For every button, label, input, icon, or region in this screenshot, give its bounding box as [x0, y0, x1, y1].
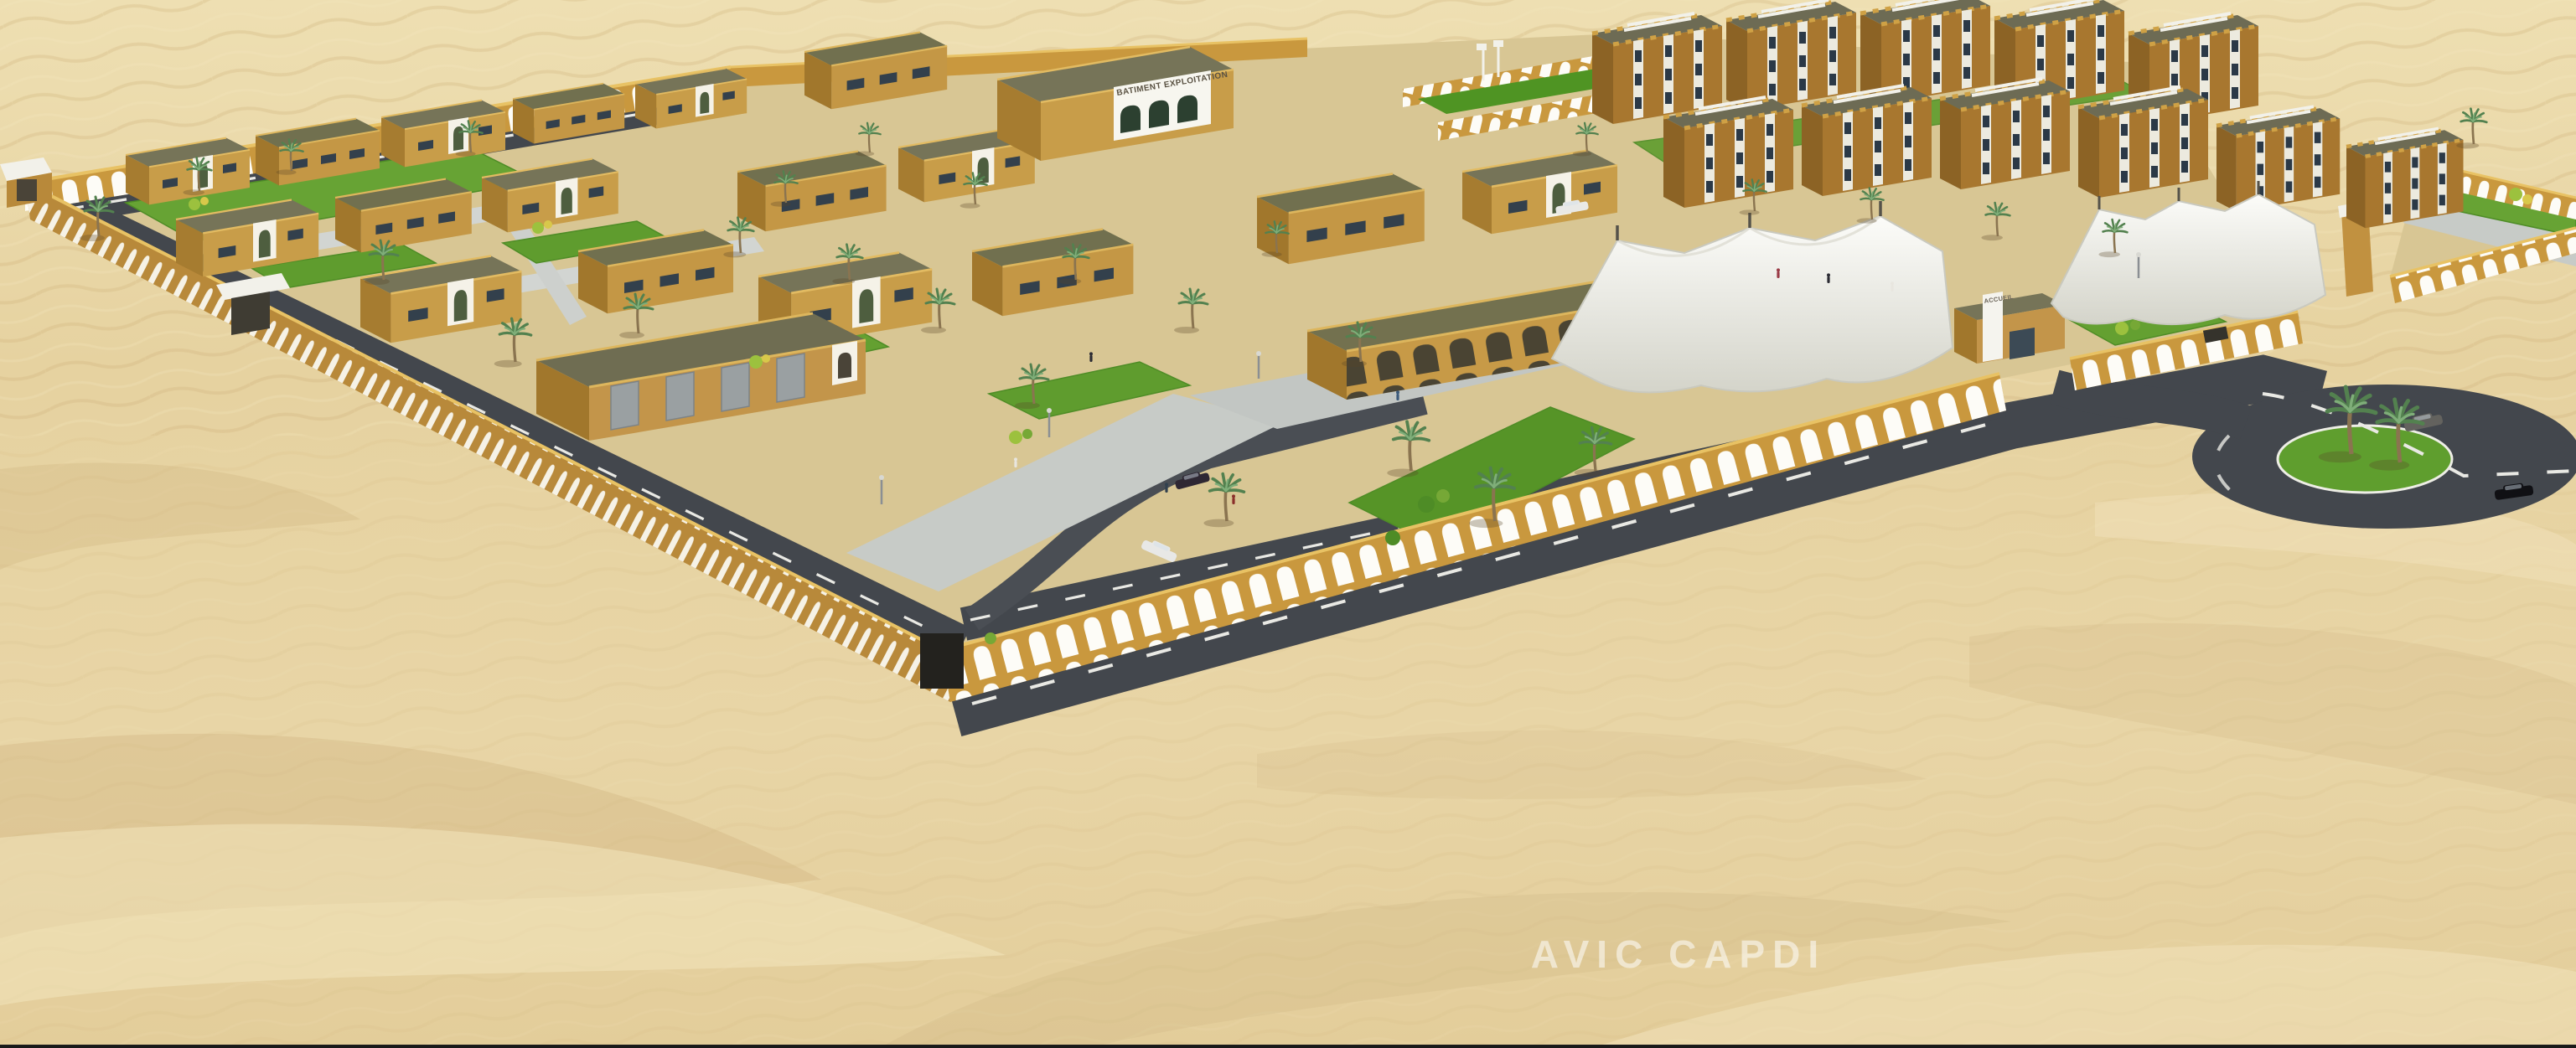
person: [1232, 494, 1235, 504]
person: [1827, 273, 1830, 283]
architectural-rendering: BATIMENT EXPLOITATION ACCUEIL: [0, 0, 2576, 1048]
south-corner-gate: [920, 633, 964, 689]
west-corner-gatehouse: [0, 157, 52, 208]
watermark-avic-capdi: AVIC CAPDI: [1531, 932, 1826, 976]
person: [1891, 281, 1894, 292]
person: [1777, 268, 1780, 278]
person: [1089, 352, 1093, 362]
person: [1396, 390, 1399, 400]
person: [1165, 483, 1168, 493]
roundabout-island: [2278, 426, 2452, 493]
accueil-glass-door: [2010, 328, 2035, 359]
bottom-border: [0, 1045, 2576, 1048]
person: [1014, 457, 1017, 467]
